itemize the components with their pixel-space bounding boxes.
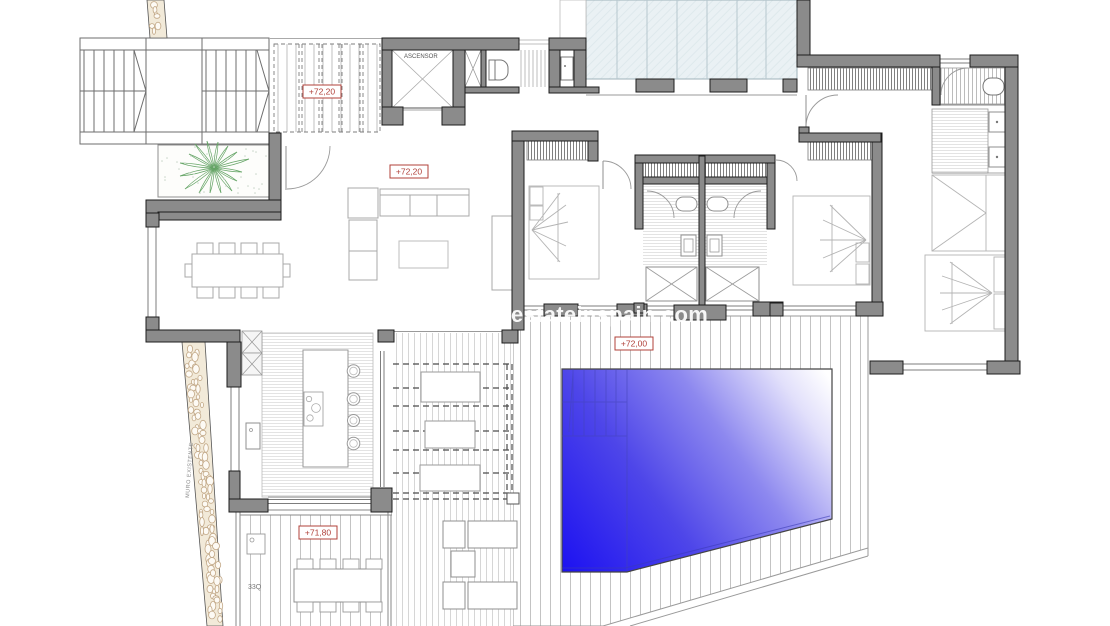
svg-text:estateinspain.com: estateinspain.com <box>511 302 708 327</box>
svg-text:+72,20: +72,20 <box>396 167 423 177</box>
svg-text:33Q: 33Q <box>248 584 262 591</box>
svg-text:+72,00: +72,00 <box>621 339 648 349</box>
svg-text:+72,20: +72,20 <box>309 87 336 97</box>
svg-text:ASCENSOR: ASCENSOR <box>404 54 438 60</box>
svg-text:+71,80: +71,80 <box>305 528 332 538</box>
